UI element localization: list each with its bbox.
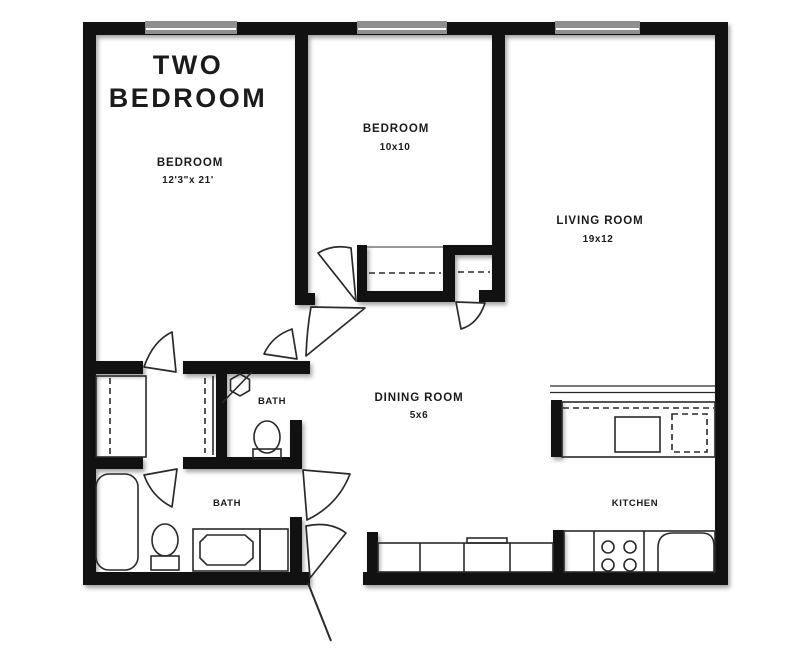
dining-counter-end-cap: [367, 532, 378, 580]
plan-title-line1: TWO: [153, 50, 223, 80]
door-swing-bath-lower: [144, 469, 177, 507]
stove-burner-icon: [624, 541, 636, 553]
kitchen-wall-stub: [553, 530, 564, 585]
door-swing-entry: [306, 525, 346, 578]
bath-upper-label: BATH: [258, 396, 286, 407]
outer-wall-right: [715, 22, 728, 585]
bath-lower-wall-right: [290, 517, 302, 579]
wall-foot-b: [479, 290, 505, 302]
wall-bedroom2-living: [492, 22, 505, 302]
entry-door-leaf: [308, 583, 331, 641]
plan-title-line2: BEDROOM: [109, 83, 268, 113]
hall-wall-bottom: [83, 457, 143, 469]
outer-wall-bottom-left: [83, 572, 310, 585]
bath-upper-wall-left: [216, 374, 227, 466]
bathtub-basin: [200, 535, 253, 565]
door-swing-hall-left: [264, 329, 297, 359]
bathtub-deck: [260, 529, 288, 571]
closet-bedroom1: [96, 376, 146, 457]
closet2-wall-top: [443, 245, 505, 255]
door-swing-bedroom1: [144, 332, 176, 372]
counter-kitchen: [564, 531, 715, 572]
counter-peninsula: [562, 402, 715, 457]
door-swing-closet2: [456, 302, 485, 329]
window-icon: [357, 21, 447, 34]
outer-wall-bottom-right: [363, 572, 728, 585]
dishwasher-icon: [672, 414, 707, 452]
stove-burner-icon: [602, 559, 614, 571]
outer-wall-left: [83, 22, 96, 585]
windows: [145, 21, 640, 34]
counter-dining: [378, 543, 553, 572]
living-room-dims: 19x12: [583, 234, 614, 245]
stove-burner-icon: [602, 541, 614, 553]
labels: TWO BEDROOM BEDROOM 12'3"x 21' BEDROOM 1…: [109, 50, 658, 509]
door-swing-bath-hall: [303, 470, 350, 520]
kitchen-sink-icon: [658, 533, 714, 572]
counter-appliance: [467, 538, 507, 543]
kitchen-sink-icon: [615, 417, 660, 452]
bedroom2-label: BEDROOM: [363, 123, 429, 135]
kitchen-label: KITCHEN: [612, 498, 658, 509]
dining-room-dims: 5x6: [410, 410, 429, 421]
shower-stall-icon: [96, 474, 138, 570]
bedroom1-south-wall-left: [83, 361, 143, 374]
bath-upper-wall-bottom: [183, 457, 302, 469]
closet-wall-bottom: [357, 291, 455, 302]
door-swing-hall-passage: [306, 307, 365, 356]
bedroom1-dims: 12'3"x 21': [162, 175, 214, 186]
dining-room-label: DINING ROOM: [374, 392, 463, 404]
window-icon: [555, 21, 640, 34]
bedroom1-label: BEDROOM: [157, 157, 223, 169]
peninsula-end-cap: [551, 400, 562, 457]
door-swing-bedroom2: [318, 247, 356, 301]
bedroom2-dims: 10x10: [380, 142, 411, 153]
bedroom1-south-wall-right: [183, 361, 310, 374]
toilet-tank: [151, 556, 179, 570]
living-room-label: LIVING ROOM: [556, 215, 643, 227]
wall-foot-a: [295, 293, 315, 305]
floor-plan-page: TWO BEDROOM BEDROOM 12'3"x 21' BEDROOM 1…: [0, 0, 800, 648]
floor-plan: TWO BEDROOM BEDROOM 12'3"x 21' BEDROOM 1…: [0, 0, 800, 648]
bath-lower-label: BATH: [213, 498, 241, 509]
stove-burner-icon: [624, 559, 636, 571]
window-icon: [145, 21, 237, 34]
toilet-icon: [152, 524, 178, 556]
kitchen-fixtures: [378, 386, 715, 572]
wall-bedroom1-bedroom2: [295, 22, 308, 305]
